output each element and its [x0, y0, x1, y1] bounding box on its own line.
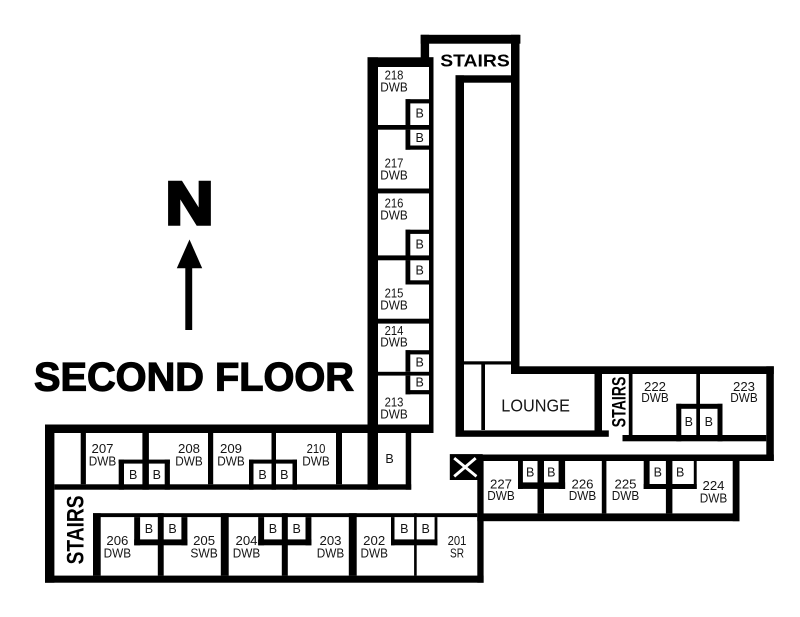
svg-text:SECOND FLOOR: SECOND FLOOR	[34, 356, 354, 400]
svg-text:DWB: DWB	[317, 547, 345, 561]
svg-text:LOUNGE: LOUNGE	[501, 396, 570, 415]
svg-text:DWB: DWB	[700, 491, 728, 505]
svg-text:B: B	[526, 466, 534, 480]
svg-text:B: B	[416, 356, 424, 370]
svg-text:DWB: DWB	[89, 455, 117, 469]
svg-text:DWB: DWB	[302, 455, 330, 469]
svg-text:B: B	[416, 376, 424, 390]
svg-text:N: N	[166, 169, 214, 237]
svg-text:DWB: DWB	[730, 391, 758, 405]
svg-text:B: B	[685, 415, 693, 429]
svg-text:DWB: DWB	[380, 209, 408, 223]
svg-text:DWB: DWB	[380, 336, 408, 350]
svg-text:B: B	[153, 468, 161, 482]
svg-text:B: B	[269, 522, 277, 536]
svg-text:SR: SR	[450, 547, 464, 561]
svg-text:DWB: DWB	[487, 489, 515, 503]
svg-text:B: B	[654, 466, 662, 480]
svg-text:STAIRS: STAIRS	[62, 495, 89, 564]
svg-text:B: B	[676, 466, 684, 480]
svg-text:B: B	[547, 466, 555, 480]
svg-text:DWB: DWB	[233, 547, 261, 561]
svg-text:B: B	[416, 131, 424, 145]
svg-text:DWB: DWB	[175, 455, 203, 469]
svg-text:DWB: DWB	[380, 299, 408, 313]
svg-text:B: B	[416, 238, 424, 252]
svg-text:B: B	[258, 468, 266, 482]
svg-text:B: B	[416, 107, 424, 121]
svg-text:B: B	[400, 522, 408, 536]
svg-text:DWB: DWB	[380, 81, 408, 95]
svg-text:DWB: DWB	[380, 169, 408, 183]
svg-text:B: B	[280, 468, 288, 482]
svg-text:DWB: DWB	[380, 408, 408, 422]
svg-text:STAIRS: STAIRS	[610, 377, 631, 428]
svg-text:B: B	[421, 522, 429, 536]
svg-text:B: B	[705, 415, 713, 429]
svg-text:DWB: DWB	[569, 489, 597, 503]
svg-text:B: B	[385, 452, 393, 466]
svg-text:B: B	[168, 522, 176, 536]
svg-text:B: B	[145, 522, 153, 536]
svg-text:DWB: DWB	[612, 489, 640, 503]
svg-text:B: B	[292, 522, 300, 536]
svg-text:STAIRS: STAIRS	[440, 51, 510, 71]
svg-text:SWB: SWB	[190, 547, 218, 561]
svg-text:B: B	[129, 468, 137, 482]
svg-text:DWB: DWB	[641, 391, 669, 405]
svg-text:DWB: DWB	[360, 547, 388, 561]
svg-text:B: B	[416, 264, 424, 278]
svg-text:DWB: DWB	[104, 547, 132, 561]
svg-text:DWB: DWB	[217, 455, 245, 469]
